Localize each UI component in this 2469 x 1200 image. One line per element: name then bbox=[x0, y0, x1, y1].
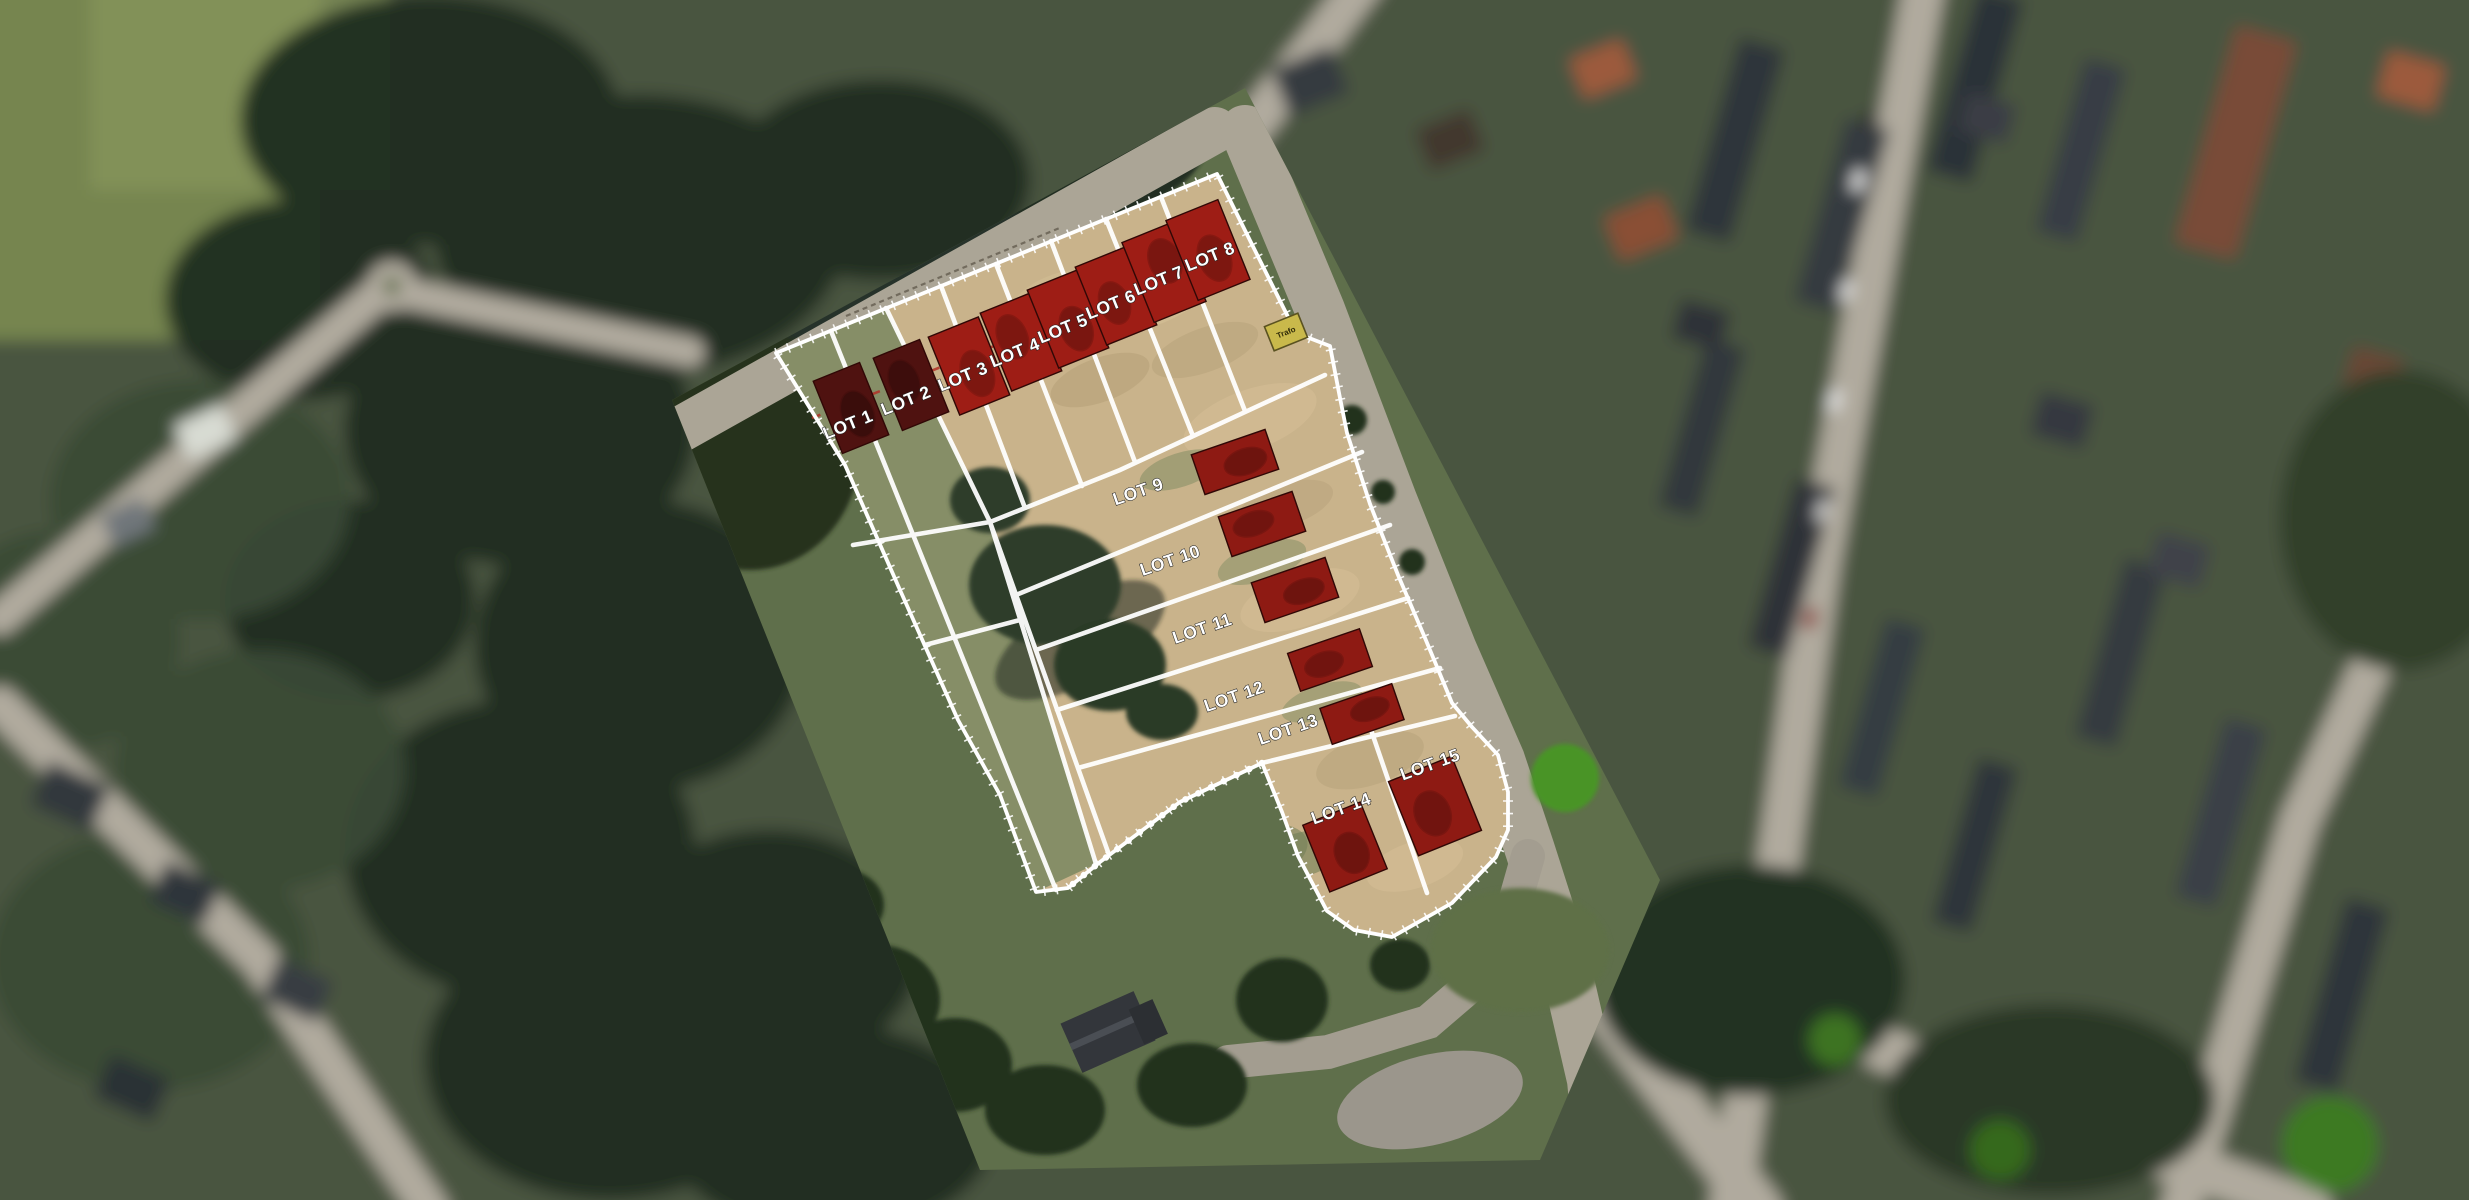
bright-tree bbox=[1531, 744, 1599, 812]
map-canvas: Trafo LOT 1 LOT 2 LOT 3 LOT 4 LOT 5 LOT … bbox=[0, 0, 2469, 1200]
satellite-map-view: Trafo LOT 1 LOT 2 LOT 3 LOT 4 LOT 5 LOT … bbox=[0, 0, 2469, 1200]
